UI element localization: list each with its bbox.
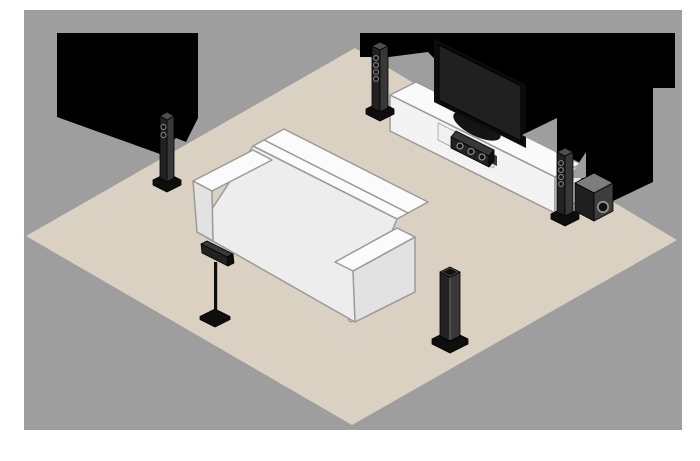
center-speaker-driver <box>468 149 474 155</box>
speaker-driver <box>161 125 166 130</box>
speaker-driver <box>559 175 564 180</box>
scene-canvas <box>0 0 700 461</box>
stand-speaker-pole <box>214 262 217 312</box>
speaker-driver <box>559 182 564 187</box>
surround-right-speaker-front <box>440 272 450 341</box>
speaker-driver <box>374 56 379 61</box>
front-left-speaker-side <box>380 46 388 112</box>
speaker-driver <box>374 77 379 82</box>
speaker-driver <box>559 168 564 173</box>
subwoofer <box>575 173 613 221</box>
subwoofer-port <box>598 202 608 212</box>
speaker-driver <box>374 63 379 68</box>
speaker-driver <box>559 161 564 166</box>
center-speaker-driver <box>457 143 463 149</box>
surround-right-speaker-side <box>450 272 460 341</box>
speaker-driver <box>374 70 379 75</box>
surround-right-speaker-edge-highlight <box>449 278 451 341</box>
center-speaker-driver <box>479 154 485 160</box>
front-right-speaker-side <box>565 152 573 216</box>
speaker-placement-illustration <box>0 0 700 461</box>
speaker-driver <box>161 133 166 138</box>
surround-left-speaker-side <box>167 116 174 182</box>
